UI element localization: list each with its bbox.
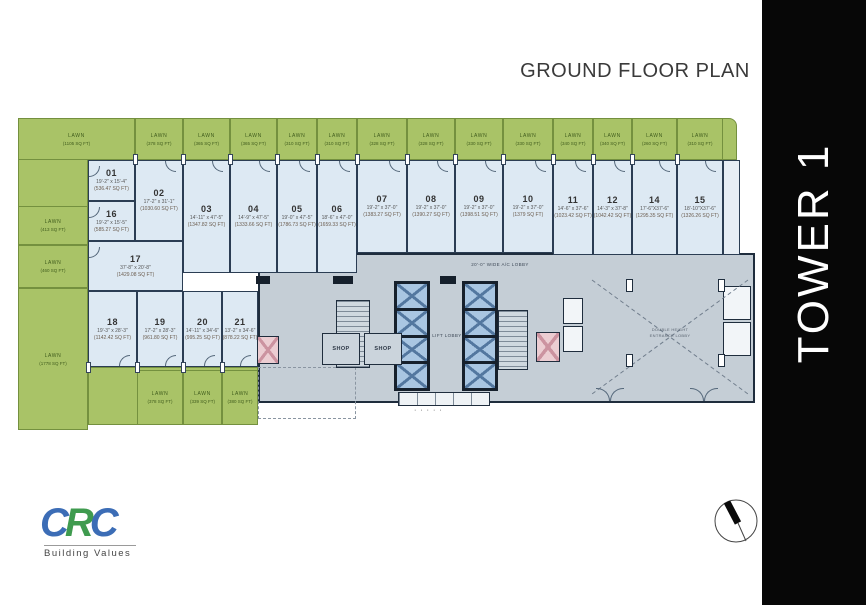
unit-area: (1383.27 SQ FT) [363, 213, 401, 218]
door-arc [89, 207, 100, 218]
dimension-tick [591, 154, 596, 165]
unit-number: 18 [107, 318, 118, 327]
unit-number: 01 [106, 169, 117, 178]
dimension-tick [275, 154, 280, 165]
unit-number: 10 [522, 195, 533, 204]
lawn-area: (330 SQ FT) [515, 141, 540, 146]
lift-car [465, 364, 495, 388]
unit-area: (1295.35 SQ FT) [636, 214, 674, 219]
lawn-378-sqft: LAWN(378 SQ FT) [135, 118, 183, 160]
logo-tagline: Building Values [44, 548, 160, 559]
lawn-260-sqft: LAWN(260 SQ FT) [632, 118, 677, 160]
lawn-label: LAWN [45, 219, 62, 225]
unit-number: 16 [106, 210, 117, 219]
lawn-label: LAWN [604, 133, 621, 139]
lawn-label: LAWN [68, 133, 85, 139]
unit-area: (1786.73 SQ FT) [278, 223, 316, 228]
lawn-label: LAWN [289, 133, 306, 139]
unit-number: 07 [376, 195, 387, 204]
lawn-378-sqft: LAWN(378 SQ FT) [137, 370, 183, 425]
tower-band: TOWER 1 [762, 0, 866, 605]
unit-number: 19 [154, 318, 165, 327]
lawn-label: LAWN [45, 260, 62, 266]
lawn-area: (340 SQ FT) [560, 141, 585, 146]
door-arc [575, 161, 586, 172]
lift-car [397, 364, 427, 388]
lawn-area: (260 SQ FT) [642, 141, 667, 146]
unit-03: 0314'-11" x 47'-5"(1347.82 SQ FT) [183, 160, 230, 273]
unit-dimensions: 18'-10"X37'-6" [684, 207, 716, 212]
unit-dimensions: 17'-2" x 31'-1" [144, 200, 175, 205]
unit-area: (536.47 SQ FT) [94, 187, 129, 192]
service-lift [257, 336, 279, 364]
utility-room [563, 326, 583, 352]
lawn-label: LAWN [151, 133, 168, 139]
unit-area: (1390.27 SQ FT) [412, 213, 450, 218]
lawn-380-sqft: LAWN(380 SQ FT) [222, 370, 258, 425]
lift-car [465, 338, 495, 362]
shop-unit: SHOP [322, 333, 360, 365]
lawn-label: LAWN [152, 391, 169, 397]
unit-area: (1326.26 SQ FT) [681, 214, 719, 219]
door-arc [165, 355, 176, 366]
unit-number: 05 [291, 205, 302, 214]
dimension-tick [675, 154, 680, 165]
unit-14: 1417'-6"X37'-6"(1295.35 SQ FT) [632, 160, 677, 255]
lawn-area: (1105 SQ FT) [63, 141, 90, 146]
lawn-1105-sqft: LAWN(1105 SQ FT) [18, 118, 135, 160]
lawn-310-sqft: LAWN(310 SQ FT) [277, 118, 317, 160]
door-arc [259, 161, 270, 172]
lawn-area: (328 SQ FT) [369, 141, 394, 146]
ac-lobby-label: 20'-0" WIDE A/C LOBBY [400, 262, 600, 267]
unit-01: 0119'-2" x 15'-4"(536.47 SQ FT) [88, 160, 135, 201]
logo-rule [44, 545, 136, 546]
lawn-label: LAWN [565, 133, 582, 139]
wall-segment [440, 276, 456, 284]
lawn-label: LAWN [520, 133, 537, 139]
unit-dimensions: 19'-3" x 28'-3" [97, 329, 128, 334]
door-arc [119, 355, 130, 366]
lawn-area: (310 SQ FT) [687, 141, 712, 146]
structural-column [626, 279, 633, 292]
door-arc [89, 166, 100, 177]
lawn-area: (378 SQ FT) [147, 399, 172, 404]
lawn-area: (378 SQ FT) [146, 141, 171, 146]
lawn-label: LAWN [329, 133, 346, 139]
dimension-tick [501, 154, 506, 165]
lawn-310-sqft: LAWN(310 SQ FT) [677, 118, 723, 160]
unit-dimensions: 14'-3" x 37'-8" [597, 207, 628, 212]
unit-area: (961.80 SQ FT) [143, 336, 178, 341]
unit-area: (1429.08 SQ FT) [117, 273, 155, 278]
lawn-area: (365 SQ FT) [241, 141, 266, 146]
unit-dimensions: 19'-0" x 47'-5" [282, 216, 313, 221]
lawn-328-sqft: LAWN(328 SQ FT) [407, 118, 455, 160]
entrance-steps [398, 392, 490, 406]
crc-logo: CRC Building Values [40, 503, 160, 559]
lawn-340-sqft: LAWN(340 SQ FT) [593, 118, 632, 160]
door-arc [89, 247, 100, 258]
end-unit [723, 160, 740, 255]
dimension-tick [405, 154, 410, 165]
lawn-area: (340 SQ FT) [600, 141, 625, 146]
shop-label: SHOP [374, 346, 391, 352]
unit-number: 03 [201, 205, 212, 214]
unit-area: (1042.42 SQ FT) [594, 214, 632, 219]
unit-dimensions: 14'-6" x 37'-6" [558, 207, 589, 212]
logo-letter-r: R [65, 501, 90, 545]
lawn-area: (328 SQ FT) [418, 141, 443, 146]
door-arc [659, 161, 670, 172]
unit-number: 11 [568, 196, 579, 205]
lawn-area: (330 SQ FT) [466, 141, 491, 146]
lawn-460-sqft: LAWN(460 SQ FT) [18, 245, 88, 288]
lawn-area: (1778 SQ FT) [39, 361, 67, 366]
unit-number: 21 [234, 318, 245, 327]
unit-number: 12 [607, 196, 618, 205]
structural-column [718, 279, 725, 292]
door-arc [535, 161, 546, 172]
unit-number: 15 [694, 196, 705, 205]
unit-dimensions: 19'-2" x 15'-4" [96, 180, 127, 185]
entrance-dots: ····· [414, 407, 446, 414]
dimension-tick [315, 154, 320, 165]
unit-area: (1030.60 SQ FT) [140, 207, 178, 212]
unit-17: 1737'-8" x 20'-8"(1429.08 SQ FT) [88, 241, 183, 291]
unit-area: (585.27 SQ FT) [94, 228, 129, 233]
unit-number: 09 [473, 195, 484, 204]
unit-dimensions: 19'-2" x 37'-0" [464, 206, 495, 211]
unit-dimensions: 13'-2" x 34'-6" [225, 329, 256, 334]
lift-lobby-label: LIFT LOBBY [418, 333, 476, 338]
unit-area: (995.25 SQ FT) [185, 336, 220, 341]
unit-dimensions: 19'-2" x 37'-0" [367, 206, 398, 211]
lawn-413-sqft: LAWN(413 SQ FT) [18, 206, 88, 245]
unit-18: 1819'-3" x 28'-3"(1142.42 SQ FT) [88, 291, 137, 367]
dimension-tick [551, 154, 556, 165]
unit-07: 0719'-2" x 37'-0"(1383.27 SQ FT) [357, 160, 407, 253]
unit-area: (878.22 SQ FT) [223, 336, 258, 341]
wall-segment [333, 276, 353, 284]
lawn-label: LAWN [45, 353, 62, 359]
dimension-tick [453, 154, 458, 165]
unit-11: 1114'-6" x 37'-6"(1023.42 SQ FT) [553, 160, 593, 255]
lawn-365-sqft: LAWN(365 SQ FT) [183, 118, 230, 160]
lawn-area: (460 SQ FT) [40, 268, 65, 273]
door-arc [204, 355, 215, 366]
shop-label: SHOP [332, 346, 349, 352]
door-arc [614, 161, 625, 172]
logo-letter-c1: C [40, 501, 65, 545]
unit-dimensions: 14'-9" x 47'-5" [238, 216, 269, 221]
dimension-tick [86, 362, 91, 373]
lawn-area: (413 SQ FT) [40, 227, 65, 232]
service-lift [536, 332, 560, 362]
structural-column [718, 354, 725, 367]
lawn-label: LAWN [374, 133, 391, 139]
unit-dimensions: 18'-6" x 47'-0" [322, 216, 353, 221]
door-arc [339, 161, 350, 172]
lawn-label: LAWN [194, 391, 211, 397]
dimension-tick [181, 362, 186, 373]
shop-unit: SHOP [364, 333, 402, 365]
unit-dimensions: 14'-11" x 47'-5" [190, 216, 223, 221]
lift-car [397, 284, 427, 308]
unit-dimensions: 14'-11" x 34'-6" [186, 329, 219, 334]
unit-06: 0618'-6" x 47'-0"(1659.33 SQ FT) [317, 160, 357, 273]
lift-car [397, 311, 427, 335]
unit-area: (1142.42 SQ FT) [94, 336, 131, 341]
door-arc [389, 161, 400, 172]
unit-dimensions: 17'-2" x 28'-3" [145, 329, 176, 334]
lawn-area: (365 SQ FT) [194, 141, 219, 146]
unit-15: 1518'-10"X37'-6"(1326.26 SQ FT) [677, 160, 723, 255]
lawn-365-sqft: LAWN(365 SQ FT) [230, 118, 277, 160]
unit-area: (1333.66 SQ FT) [235, 223, 273, 228]
unit-21: 2113'-2" x 34'-6"(878.22 SQ FT) [222, 291, 258, 367]
utility-room [563, 298, 583, 324]
lawn-area: (380 SQ FT) [227, 399, 252, 404]
dimension-tick [220, 362, 225, 373]
unit-dimensions: 17'-6"X37'-6" [640, 207, 669, 212]
lawn-label: LAWN [245, 133, 262, 139]
unit-08: 0819'-2" x 37'-0"(1390.27 SQ FT) [407, 160, 455, 253]
lawn-area: (310 SQ FT) [324, 141, 349, 146]
lawn-area: (310 SQ FT) [284, 141, 309, 146]
dimension-tick [228, 154, 233, 165]
unit-area: (1023.42 SQ FT) [554, 214, 592, 219]
lawn-label: LAWN [232, 391, 249, 397]
logo-letter-c2: C [90, 501, 115, 545]
door-arc [437, 161, 448, 172]
dimension-tick [133, 154, 138, 165]
north-compass [712, 497, 760, 545]
unit-number: 04 [248, 205, 259, 214]
door-arc [485, 161, 496, 172]
lawn-label: LAWN [471, 133, 488, 139]
lawn-label: LAWN [423, 133, 440, 139]
lift-car [465, 311, 495, 335]
lift-car [465, 284, 495, 308]
lawn-339-sqft: LAWN(339 SQ FT) [183, 370, 222, 425]
unit-number: 17 [130, 255, 141, 264]
floor-plan-sheet: GROUND FLOOR PLAN TOWER 1 20'-0" WIDE A/… [0, 0, 866, 605]
unit-16: 1619'-2" x 15'-5"(585.27 SQ FT) [88, 201, 135, 241]
tower-label: TOWER 1 [789, 143, 839, 364]
structural-column [626, 354, 633, 367]
door-arc [240, 355, 251, 366]
lawn-area: (339 SQ FT) [190, 399, 215, 404]
unit-dimensions: 19'-2" x 37'-0" [513, 206, 544, 211]
dimension-tick [355, 154, 360, 165]
unit-area: (1379 SQ FT) [513, 213, 544, 218]
unit-10: 1019'-2" x 37'-0"(1379 SQ FT) [503, 160, 553, 253]
unit-dimensions: 19'-2" x 15'-5" [96, 221, 127, 226]
unit-12: 1214'-3" x 37'-8"(1042.42 SQ FT) [593, 160, 632, 255]
door-arc [705, 161, 716, 172]
unit-number: 20 [197, 318, 208, 327]
lawn-310-sqft: LAWN(310 SQ FT) [317, 118, 357, 160]
dimension-tick [135, 362, 140, 373]
unit-02: 0217'-2" x 31'-1"(1030.60 SQ FT) [135, 160, 183, 241]
hall-label: DOUBLE HEIGHT ENTRANCE LOBBY [610, 327, 730, 338]
lawn-label: LAWN [198, 133, 215, 139]
door-arc [299, 161, 310, 172]
canopy-outline [258, 367, 356, 419]
lawn-label: LAWN [692, 133, 709, 139]
unit-19: 1917'-2" x 28'-3"(961.80 SQ FT) [137, 291, 183, 367]
unit-09: 0919'-2" x 37'-0"(1398.51 SQ FT) [455, 160, 503, 253]
staircase [498, 310, 528, 370]
lawn-label: LAWN [646, 133, 663, 139]
unit-dimensions: 37'-8" x 20'-8" [120, 266, 151, 271]
unit-number: 14 [649, 196, 660, 205]
unit-area: (1347.82 SQ FT) [188, 223, 226, 228]
unit-number: 06 [331, 205, 342, 214]
lawn-330-sqft: LAWN(330 SQ FT) [503, 118, 553, 160]
door-arc [212, 161, 223, 172]
dimension-tick [630, 154, 635, 165]
dimension-tick [181, 154, 186, 165]
unit-05: 0519'-0" x 47'-5"(1786.73 SQ FT) [277, 160, 317, 273]
unit-area: (1659.33 SQ FT) [318, 223, 356, 228]
crc-logo-letters: CRC [40, 503, 160, 543]
unit-number: 02 [153, 189, 164, 198]
lawn-328-sqft: LAWN(328 SQ FT) [357, 118, 407, 160]
lawn-1778-sqft: LAWN(1778 SQ FT) [18, 288, 88, 430]
unit-04: 0414'-9" x 47'-5"(1333.66 SQ FT) [230, 160, 277, 273]
lawn-340-sqft: LAWN(340 SQ FT) [553, 118, 593, 160]
unit-number: 08 [425, 195, 436, 204]
unit-area: (1398.51 SQ FT) [460, 213, 498, 218]
lawn-330-sqft: LAWN(330 SQ FT) [455, 118, 503, 160]
unit-dimensions: 19'-2" x 37'-0" [416, 206, 447, 211]
door-arc [165, 161, 176, 172]
wall-segment [256, 276, 270, 284]
unit-20: 2014'-11" x 34'-6"(995.25 SQ FT) [183, 291, 222, 367]
